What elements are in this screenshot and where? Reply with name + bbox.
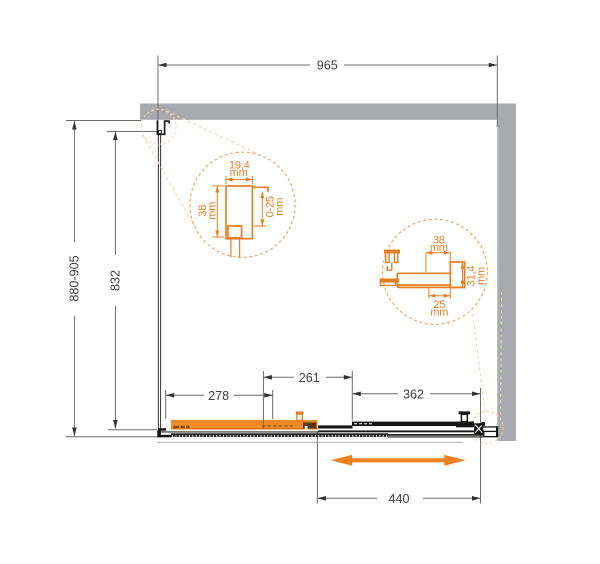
svg-text:440: 440	[388, 492, 409, 506]
svg-text:mm: mm	[430, 242, 448, 254]
svg-text:261: 261	[299, 371, 320, 385]
svg-text:832: 832	[108, 270, 122, 291]
svg-text:880-905: 880-905	[68, 255, 82, 301]
svg-text:965: 965	[317, 58, 338, 72]
svg-text:mm: mm	[274, 198, 286, 216]
svg-text:mm: mm	[430, 306, 448, 318]
svg-text:mm: mm	[207, 202, 219, 220]
svg-text:278: 278	[208, 389, 229, 403]
svg-text:mm: mm	[230, 167, 248, 179]
svg-text:362: 362	[403, 387, 424, 401]
svg-text:mm: mm	[475, 267, 487, 285]
